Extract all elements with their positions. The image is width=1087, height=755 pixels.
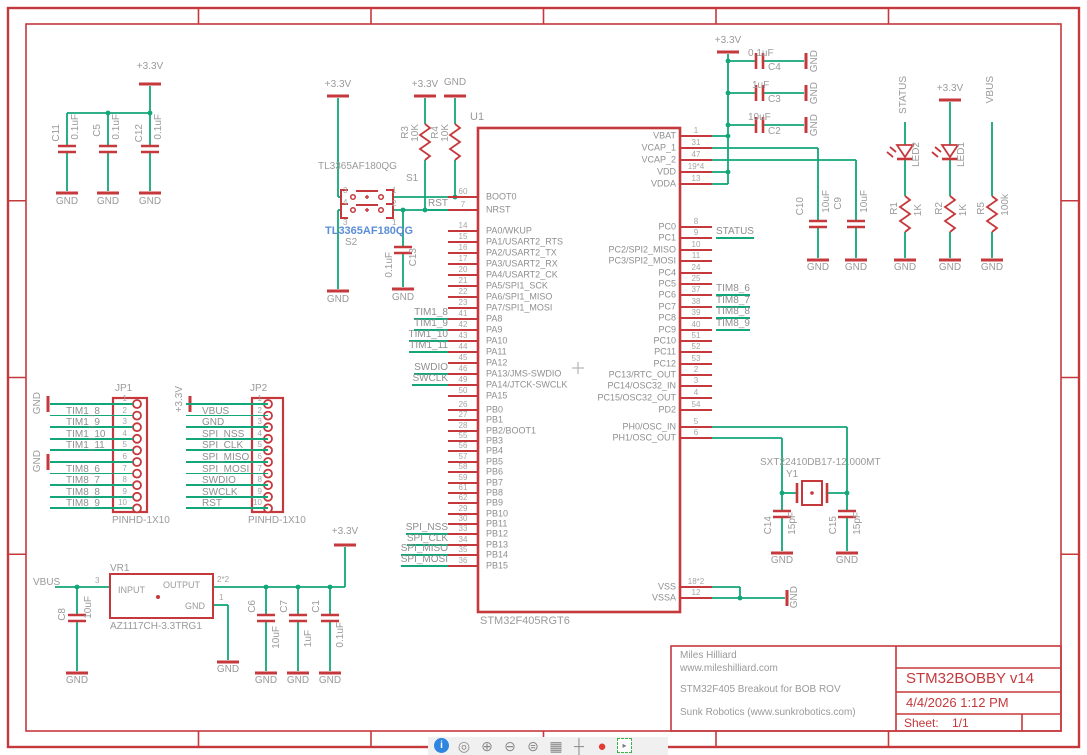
pin-number: 9 (123, 488, 127, 496)
net-label: TIM8_9 (716, 319, 750, 331)
vr1-designator: VR1 (110, 564, 129, 574)
net-label: STATUS (716, 227, 754, 239)
ic-pin-row[interactable]: PH0/OSC_IN 5 (560, 422, 790, 433)
cap-ref: C2 (768, 127, 781, 137)
pin-number: 58 (448, 463, 478, 471)
cap-ref: C10 (796, 197, 806, 215)
v33-label: +3.3V (137, 62, 163, 72)
ic-pin-row[interactable]: PC15/OSC32_OUT 4 (560, 392, 790, 403)
frame-row-label (1063, 378, 1078, 555)
pin-name: VBAT (653, 132, 676, 141)
ic-pin-row[interactable]: PC5 25 (560, 278, 790, 289)
ic-pin-row[interactable]: VSSA 12 (560, 593, 790, 604)
pin-number: 49 (448, 376, 478, 384)
jp2-part-name: PINHD-1X10 (248, 516, 306, 526)
pin-number: 55 (448, 432, 478, 440)
gnd-label: GND (836, 556, 858, 566)
pin-name: PA10 (486, 337, 507, 346)
info-icon[interactable]: i (434, 738, 449, 753)
net-label: SWCLK (412, 374, 448, 386)
pin-stub (680, 183, 712, 185)
vr1-output-label: OUTPUT (163, 580, 200, 590)
pin-number: 3 (680, 377, 712, 385)
crystal-designator: Y1 (786, 470, 798, 480)
pin-number: 2 (258, 407, 262, 415)
pin-stub (680, 147, 712, 149)
cap-value: 1uF (752, 81, 769, 91)
pin-number: 17 (448, 255, 478, 263)
cap-ref: C7 (280, 600, 290, 613)
u1-ph-pins: PH0/OSC_IN 5 PH1/OSC_OUT 6 (560, 422, 790, 444)
pin-number: 16 (448, 244, 478, 252)
switch-designator: S1 (406, 174, 418, 184)
pin-name: PB13 (486, 540, 508, 549)
pin-number: 28 (448, 422, 478, 430)
ic-pin-row[interactable]: RST 7 NRST (403, 204, 633, 217)
switch-pin-number: 4 (343, 199, 347, 207)
pin-name: PC5 (658, 279, 676, 288)
pin-number: 10 (118, 499, 127, 507)
ic-pin-row[interactable]: 57 PB5 (403, 457, 633, 467)
pin-number: 3 (123, 418, 127, 426)
net-label: TIM1_8 (66, 407, 100, 417)
pin-stub (680, 397, 712, 399)
pin-number: 23 (448, 299, 478, 307)
net-label: SPI_MOSI (401, 555, 448, 567)
resistor-value: 10K (411, 124, 421, 142)
frame-row-label (1063, 201, 1078, 378)
pin-stub (680, 260, 712, 262)
pin-number: 2 (123, 407, 127, 415)
pin-name: PC11 (654, 348, 676, 357)
pin-number: 11 (680, 252, 712, 260)
pin-number: 46 (448, 365, 478, 373)
gnd-label: GND (392, 293, 414, 303)
frame-col-label (371, 9, 544, 24)
preview-icon[interactable]: ◎ (456, 738, 472, 754)
ic-pin-row[interactable]: PC1 9 STATUS (560, 233, 790, 244)
u1-pd-pins: PD2 54 (560, 405, 790, 416)
pin-name: PA3/USART2_RX (486, 260, 558, 269)
pin-number: 59 (448, 474, 478, 482)
cap-ref: C4 (768, 63, 781, 73)
ic-pin-row[interactable]: PH1/OSC_OUT 6 (560, 433, 790, 444)
pin-name: PB5 (486, 457, 503, 466)
pin-name: PB6 (486, 468, 503, 477)
gnd-label: GND (139, 197, 161, 207)
resistor-value: 10K (441, 124, 451, 142)
gnd-label: GND (771, 556, 793, 566)
pin-name: PB2/BOOT1 (486, 426, 536, 435)
pin-number: 5 (258, 441, 262, 449)
ic-pin-row[interactable]: PC14/OSC32_IN 3 (560, 381, 790, 392)
pin-number: 31 (680, 139, 712, 147)
pin-name: PH1/OSC_OUT (612, 434, 676, 443)
header-pin-row[interactable]: TIM1_11 5 (50, 445, 133, 457)
pin-number: 56 (448, 442, 478, 450)
ic-pin-row[interactable]: 62 PB9 (403, 498, 633, 508)
cap-value: 10uF (272, 626, 282, 649)
cap-ref: C8 (58, 608, 68, 621)
frame-col-label (199, 9, 372, 24)
ic-pin-row[interactable]: PC11 52 (560, 347, 790, 358)
ic-pin-row[interactable]: 58 PB6 (403, 467, 633, 477)
pin-number: 39 (680, 309, 712, 317)
gnd-label: GND (444, 78, 466, 88)
cap-value: 10uF (860, 190, 870, 213)
switch-part-name: TL3365AF180QG (318, 162, 397, 172)
stop-icon[interactable]: ● (594, 738, 610, 754)
pin-number: 42 (448, 321, 478, 329)
ic-pin-row[interactable]: VCAP_2 47 (560, 154, 790, 166)
frame-row-label (1063, 24, 1078, 201)
pin-name: PC14/OSC32_IN (607, 382, 676, 391)
ic-pin-row[interactable]: VCAP_1 31 (560, 142, 790, 154)
pin-name: PA15 (486, 392, 507, 401)
pin-wire (186, 426, 268, 428)
v33-label: +3.3V (175, 386, 185, 412)
pin-wire (50, 403, 133, 405)
pin-number: 53 (680, 355, 712, 363)
gnd-label: GND (66, 676, 88, 686)
pin-number: 12 (680, 589, 712, 597)
resistor-value: 1K (959, 204, 969, 216)
u1-boot-pins: 60 BOOT0 RST 7 NRST (403, 191, 633, 217)
frame-row-label (9, 24, 24, 201)
cap-ref: C9 (834, 197, 844, 210)
pin-number: 21 (448, 277, 478, 285)
gnd-label: GND (255, 676, 277, 686)
v33-label: +3.3V (332, 527, 358, 537)
gnd-label: GND (287, 676, 309, 686)
titleblock-date: 4/4/2026 1:12 PM (906, 695, 1009, 710)
v33-label: +3.3V (937, 84, 963, 94)
u1-designator: U1 (470, 112, 484, 122)
pin-number: 4 (680, 389, 712, 397)
gnd-label: GND (217, 665, 239, 675)
v33-label: +3.3V (715, 36, 741, 46)
pin-number: 57 (448, 453, 478, 461)
resistor-ref: R2 (935, 202, 945, 215)
jp1-pins: 1 TIM1_8 2 TIM1_9 3 TIM1_10 4 TIM1_11 5 … (50, 398, 133, 514)
ic-pin-row[interactable]: PC7 38 TIM8_7 (560, 301, 790, 312)
pin-number: 5 (680, 418, 712, 426)
frame-row-label (9, 554, 24, 731)
pin-number: 60 (448, 188, 478, 196)
pin-number: 4 (258, 430, 262, 438)
zoom-out-icon[interactable]: ⊖ (502, 738, 518, 754)
net-label: VBUS (202, 407, 229, 417)
header-pin-row[interactable]: RST 10 (186, 503, 268, 515)
pin-number: 5 (123, 441, 127, 449)
titleblock-company: Sunk Robotics (www.sunkrobotics.com) (680, 707, 856, 718)
pin-name: PA8 (486, 315, 502, 324)
net-label: GND (202, 418, 224, 428)
crystal-part-name: SXT22410DB17-12.000MT (760, 458, 881, 468)
pin-number: 44 (448, 343, 478, 351)
zoom-in-icon[interactable]: ⊕ (479, 738, 495, 754)
pin-name: PA14/JTCK-SWCLK (486, 381, 567, 390)
ic-pin-row[interactable]: PC6 37 TIM8_6 (560, 290, 790, 301)
gnd-label: GND (981, 263, 1003, 273)
cap-value: 10uF (822, 190, 832, 213)
vr1-pin-number: 1 (219, 594, 223, 602)
vr1-pin-number: 2*2 (217, 576, 229, 584)
origin-icon[interactable]: ┼ (571, 738, 587, 754)
pin-number: 20 (448, 266, 478, 274)
frame-col-label (889, 9, 1062, 24)
pin-name: PC1 (658, 234, 676, 243)
ic-pin-row[interactable]: VDDA 13 (560, 178, 790, 190)
pin-number: 35 (448, 546, 478, 554)
pin-name: PB4 (486, 447, 503, 456)
pin-number: 6 (680, 429, 712, 437)
pin-number: 52 (680, 343, 712, 351)
frame-rows-right (1063, 24, 1078, 731)
ic-pin-row[interactable]: SPI_MOSI 36 PB15 (403, 560, 633, 570)
gnd-label: GND (790, 586, 800, 608)
pin-name: PA6/SPI1_MISO (486, 293, 552, 302)
switch-pin-number: 3 (343, 187, 347, 195)
switch-designator: S2 (345, 238, 357, 248)
pin-number: 1 (680, 127, 712, 135)
pin-stub (448, 395, 478, 397)
frame-col-label (716, 733, 889, 748)
pin-number: 24 (680, 264, 712, 272)
frame-col-label (716, 9, 889, 24)
titleblock-author: Miles Hilliard (680, 650, 737, 661)
pin-name: VDD (657, 168, 676, 177)
net-label: SPI_NSS (202, 430, 244, 440)
pin-wire (186, 507, 268, 509)
pin-number: 61 (448, 484, 478, 492)
ic-pin-row[interactable]: PC0 8 (560, 221, 790, 232)
pin-number: 9 (258, 488, 262, 496)
pin-number: 15 (448, 233, 478, 241)
jp2-designator: JP2 (250, 384, 267, 394)
switch-pin-number: 1 (392, 187, 396, 195)
pin-stub (680, 135, 712, 137)
pin-number: 8 (258, 476, 262, 484)
ic-pin-row[interactable]: 59 PB7 (403, 477, 633, 487)
bottom-toolbar: i ◎ ⊕ ⊖ ⊜ ▦ ┼ ● ▸ (428, 737, 668, 755)
pin-name: PB0 (486, 405, 503, 414)
ic-pin-row[interactable]: 61 PB8 (403, 488, 633, 498)
pin-number: 54 (680, 401, 712, 409)
frame-columns-top (26, 9, 1061, 24)
pin-name: PB8 (486, 488, 503, 497)
net-label: SWCLK (202, 488, 238, 498)
vr1-part-name: AZ1117CH-3.3TRG1 (110, 622, 202, 632)
select-region-icon[interactable]: ▸ (617, 738, 632, 753)
cap-value: 0.1uF (336, 622, 346, 648)
switch-pin-number: 1 (392, 219, 396, 227)
pin-wire (186, 403, 268, 405)
pin-name: PC13/RTC_OUT (609, 371, 676, 380)
pin-number: 27 (448, 411, 478, 419)
ic-pin-row[interactable]: PC13/RTC_OUT 2 (560, 369, 790, 380)
net-label: TIM1_9 (66, 418, 100, 428)
titleblock-website: www.mileshilliard.com (680, 663, 778, 674)
ic-pin-row[interactable]: PD2 54 (560, 405, 790, 416)
net-label: SPI_MISO (202, 453, 249, 463)
pin-name: PA4/USART2_CK (486, 271, 558, 280)
switch-pin-number: 3 (343, 219, 347, 227)
pin-number: 7 (448, 201, 478, 209)
u1-gnd-pins: VSS 18*2 VSSA 12 (560, 582, 790, 604)
net-label: SPI_MOSI (202, 465, 249, 475)
pin-name: PC9 (658, 325, 676, 334)
gnd-label: GND (894, 263, 916, 273)
pin-number: 8 (680, 218, 712, 226)
pin-name: PB3 (486, 436, 503, 445)
pin-stub (680, 317, 712, 319)
gnd-label: GND (810, 114, 820, 136)
gnd-label: GND (56, 197, 78, 207)
cap-value: 10uF (84, 596, 94, 619)
titleblock-sheet-value: 1/1 (952, 716, 969, 730)
pin-number: 7 (258, 465, 262, 473)
pin-name: VCAP_1 (641, 144, 676, 153)
pin-name: PA11 (486, 348, 507, 357)
titleblock-sheet-label: Sheet: (904, 716, 939, 730)
cap-ref: C1 (312, 600, 322, 613)
frame-row-label (9, 201, 24, 378)
frame-rows-left (9, 24, 24, 731)
vr1-gnd-label: GND (185, 601, 205, 611)
pin-wire (50, 461, 133, 463)
status-net-label: STATUS (899, 76, 909, 114)
pin-name: PB1 (486, 416, 503, 425)
pin-stub (680, 409, 712, 411)
net-label: TIM1_11 (409, 341, 448, 353)
vr1-pin-number: 3 (95, 577, 99, 585)
cap-ref: C11 (52, 124, 62, 142)
pin-name: PC3/SPI2_MOSI (608, 257, 676, 266)
pin-number: 6 (123, 453, 127, 461)
pin-number: 47 (680, 151, 712, 159)
pin-number: 30 (448, 515, 478, 523)
resistor-value: 100k (1001, 194, 1011, 216)
switch-part-name-highlighted[interactable]: TL3365AF180QG (325, 225, 413, 237)
pin-stub (680, 351, 712, 353)
pin-name: PC10 (653, 336, 676, 345)
pin-name: PC2/SPI2_MISO (608, 245, 676, 254)
pin-name: PB10 (486, 509, 508, 518)
pin-number: 43 (448, 332, 478, 340)
pin-number: 36 (448, 557, 478, 565)
pin-number: 26 (448, 401, 478, 409)
cap-ref: C3 (768, 95, 781, 105)
pin-number: 40 (680, 321, 712, 329)
pin-number: 10 (253, 499, 262, 507)
pin-name: PA2/USART2_TX (486, 249, 557, 258)
zoom-fit-icon[interactable]: ⊜ (525, 738, 541, 754)
pin-name: PB11 (486, 520, 507, 529)
titleblock-title: STM32BOBBY v14 (906, 670, 1034, 687)
pin-number: 33 (448, 525, 478, 533)
frame-col-label (26, 733, 199, 748)
pin-number: 62 (448, 494, 478, 502)
pin-name: VCAP_2 (641, 156, 676, 165)
pin-name: PB12 (486, 530, 508, 539)
ic-pin-row[interactable]: VDD 19*4 (560, 166, 790, 178)
pin-number: 51 (680, 332, 712, 340)
ic-pin-row[interactable]: PC10 51 (560, 335, 790, 346)
ic-pin-row[interactable]: PC8 39 TIM8_8 (560, 312, 790, 323)
pin-name: BOOT0 (486, 193, 517, 202)
frame-col-label (544, 9, 717, 24)
ic-pin-row[interactable]: PC3/SPI2_MOSI 11 (560, 255, 790, 266)
net-label: SPI_CLK (202, 441, 243, 451)
pin-stub (448, 196, 478, 198)
ic-pin-row[interactable]: PC9 40 TIM8_9 (560, 324, 790, 335)
ic-pin-row[interactable]: VBAT 1 (560, 130, 790, 142)
pin-number: 50 (448, 387, 478, 395)
pin-number: 22 (448, 288, 478, 296)
ic-pin-row[interactable]: PC12 53 (560, 358, 790, 369)
ic-pin-row[interactable]: PC2/SPI2_MISO 10 (560, 244, 790, 255)
cap-ref: C12 (135, 124, 145, 142)
gnd-label: GND (319, 676, 341, 686)
led-ref: LED2 (912, 142, 922, 167)
pin-name: PB7 (486, 478, 503, 487)
cap-ref: C6 (248, 600, 258, 613)
pin-number: 4 (123, 430, 127, 438)
vr1-input-label: INPUT (118, 585, 145, 595)
net-label: RST (428, 199, 448, 211)
titleblock-description: STM32F405 Breakout for BOB ROV (680, 684, 841, 695)
net-label: TIM8_7 (66, 476, 100, 486)
header-pin-row[interactable]: VBUS 2 (186, 410, 268, 422)
pin-number: 13 (680, 175, 712, 183)
pin-number: 1 (258, 395, 262, 403)
pin-number: 41 (448, 310, 478, 318)
pin-number: 37 (680, 286, 712, 294)
resistor-ref: R1 (890, 202, 900, 215)
ic-pin-row[interactable]: 29 PB10 (403, 509, 633, 519)
schematic-editor: 60 BOOT0 RST 7 NRST 14 PA0/WKUP 15 PA1/U… (0, 0, 1087, 755)
gnd-label: GND (810, 82, 820, 104)
cap-ref: C14 (764, 516, 774, 534)
gnd-label: GND (33, 450, 43, 472)
ic-pin-row[interactable]: PC4 24 (560, 267, 790, 278)
cap-value: 0.1uF (112, 114, 122, 140)
gnd-label: GND (33, 392, 43, 414)
cap-ref: C5 (93, 124, 103, 137)
pin-name: VSS (658, 583, 676, 592)
ic-pin-row[interactable]: VSS 18*2 (560, 582, 790, 593)
v33-label: +3.3V (325, 80, 351, 90)
pin-name: PA12 (486, 359, 507, 368)
header-pin-row[interactable]: TIM8_9 10 (50, 503, 133, 515)
ic-pin-row[interactable]: 56 PB4 (403, 446, 633, 456)
vbus-net-label: VBUS (33, 578, 60, 588)
net-label: TIM8_8 (66, 488, 100, 498)
jp1-designator: JP1 (115, 384, 132, 394)
grid-icon[interactable]: ▦ (548, 738, 564, 754)
pin-number: 25 (680, 275, 712, 283)
pin-name: PA7/SPI1_MOSI (486, 304, 552, 313)
net-label: RST (202, 499, 222, 509)
vbus-net-label: VBUS (986, 76, 996, 103)
cap-value: 0.1uF (154, 114, 164, 140)
jp2-pins: 1 VBUS 2 GND 3 SPI_NSS 4 SPI_CLK 5 SPI_M… (186, 398, 268, 514)
u1-pc-pins: PC0 8 PC1 9 STATUS PC2/SPI2_MISO 10 PC3/… (560, 221, 790, 403)
pin-stub (680, 159, 712, 161)
pin-name: PB9 (486, 499, 503, 508)
pin-name: PD2 (658, 406, 676, 415)
